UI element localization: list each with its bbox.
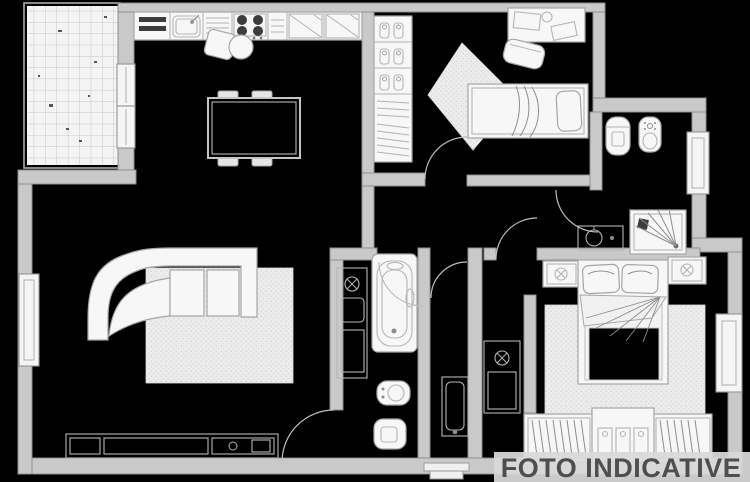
sofa-cushion bbox=[170, 270, 204, 316]
pillow-left bbox=[582, 264, 619, 294]
wall-master-top-a bbox=[484, 248, 496, 260]
entrance-step bbox=[424, 463, 469, 479]
dining-table bbox=[208, 91, 300, 166]
single-bed bbox=[468, 84, 588, 138]
wall-dining-east bbox=[362, 12, 374, 250]
balcony-tiles bbox=[27, 6, 118, 165]
wall-master-west bbox=[524, 295, 536, 413]
wall-bedroom2-south-a bbox=[362, 173, 425, 186]
single-bed-pillow bbox=[556, 90, 582, 131]
shower bbox=[630, 209, 686, 254]
bidet bbox=[377, 381, 410, 405]
wall-bath-east bbox=[418, 248, 430, 458]
kitchen-chair-seat bbox=[229, 35, 253, 59]
pillow-right bbox=[622, 264, 659, 293]
nightstand-left bbox=[543, 261, 580, 287]
desk bbox=[508, 8, 585, 42]
nightstand-right bbox=[668, 257, 706, 284]
sofa-cushion bbox=[207, 270, 239, 316]
dining-table-top bbox=[208, 98, 300, 158]
wall-bath-top bbox=[330, 248, 377, 260]
window-bathroom2 bbox=[687, 132, 709, 194]
wall-balcony-south bbox=[18, 170, 136, 184]
bedroom2-closet bbox=[374, 16, 412, 162]
toilet bbox=[374, 419, 406, 449]
balcony-door bbox=[117, 64, 135, 148]
double-bed bbox=[578, 260, 668, 384]
wall-bath2-top bbox=[593, 98, 706, 112]
watermark-text: FOTO INDICATIVE bbox=[501, 453, 742, 482]
window-left bbox=[19, 274, 39, 366]
toilet-2 bbox=[606, 117, 630, 155]
bathtub bbox=[372, 254, 417, 352]
bed-open-area bbox=[589, 328, 659, 380]
bidet-2 bbox=[639, 117, 661, 152]
wall-hall bbox=[468, 248, 482, 458]
balcony bbox=[24, 3, 120, 168]
wall-right-upper bbox=[593, 12, 605, 103]
bathtub-drain bbox=[392, 329, 397, 334]
floor-plan-image: FOTO INDICATIVE bbox=[0, 0, 750, 482]
window-master bbox=[716, 314, 742, 392]
watermark: FOTO INDICATIVE bbox=[494, 452, 750, 482]
wall-closet-east bbox=[590, 112, 602, 190]
floorplan-svg: FOTO INDICATIVE bbox=[0, 0, 750, 482]
wall-bedroom2-south-b bbox=[467, 175, 592, 186]
